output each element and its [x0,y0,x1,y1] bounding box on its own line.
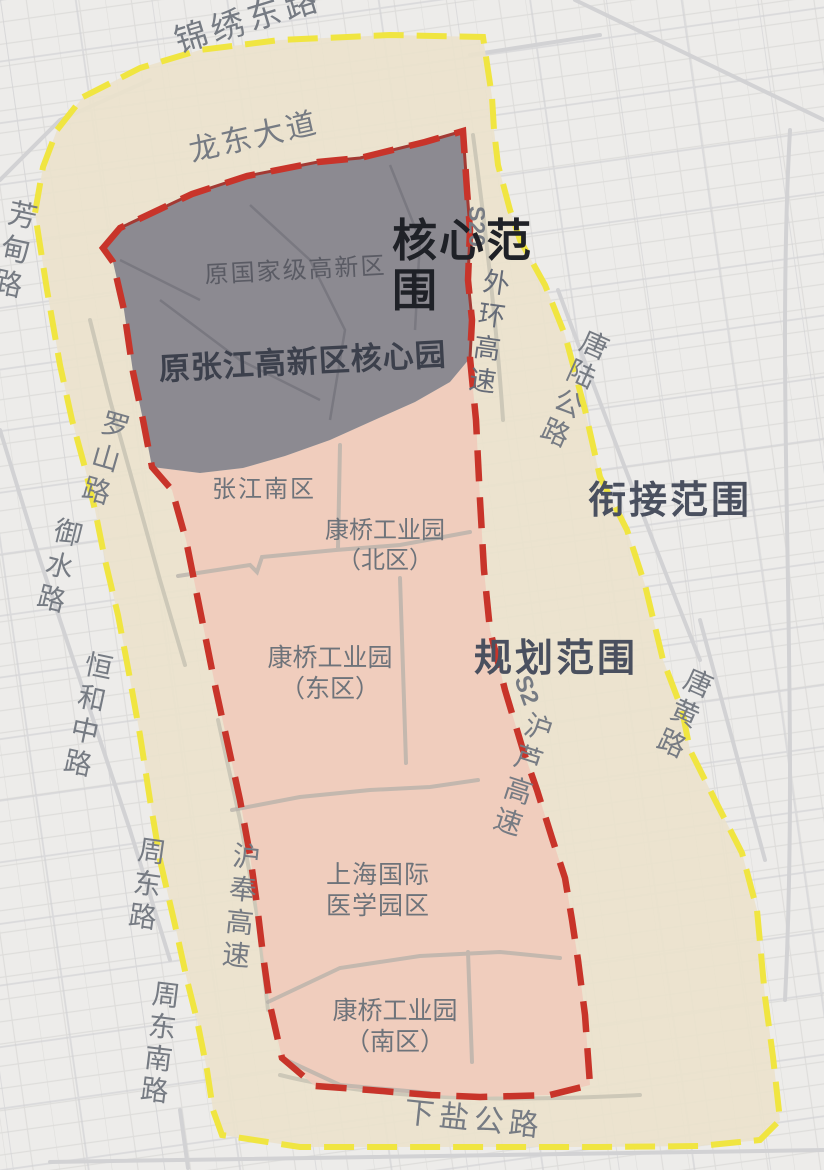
zone-label-kangqiao-east-line1: 康桥工业园 [260,643,400,674]
zone-label-medical-park: 上海国际 医学园区 [326,860,430,921]
zone-label-kangqiao-south: 康桥工业园 （南区） [322,996,468,1059]
map-canvas [0,0,824,1170]
zone-label-medical-line2: 医学园区 [326,891,430,922]
zone-label-core-range: 核心范围 [392,216,544,317]
zone-label-zhangjiang-south: 张江南区 [212,476,316,504]
zone-label-kangqiao-north: 康桥工业园 （北区） [318,516,452,576]
zone-label-medical-line1: 上海国际 [326,860,430,891]
zone-label-kangqiao-north-line1: 康桥工业园 [318,516,452,546]
zone-label-kangqiao-east-line2: （东区） [260,674,400,705]
zone-label-kangqiao-south-line1: 康桥工业园 [322,996,468,1027]
zone-label-kangqiao-north-line2: （北区） [318,546,452,576]
zone-label-kangqiao-south-line2: （南区） [322,1027,468,1058]
zone-label-connection-range: 衔接范围 [588,480,752,524]
planning-map: 锦绣东路 龙东大道 芳甸路 S20 外环高速 唐陆公路 罗山路 御水路 恒和中路… [0,0,824,1170]
zone-label-planning-range: 规划范围 [474,638,638,682]
zone-label-kangqiao-east: 康桥工业园 （东区） [260,643,400,706]
